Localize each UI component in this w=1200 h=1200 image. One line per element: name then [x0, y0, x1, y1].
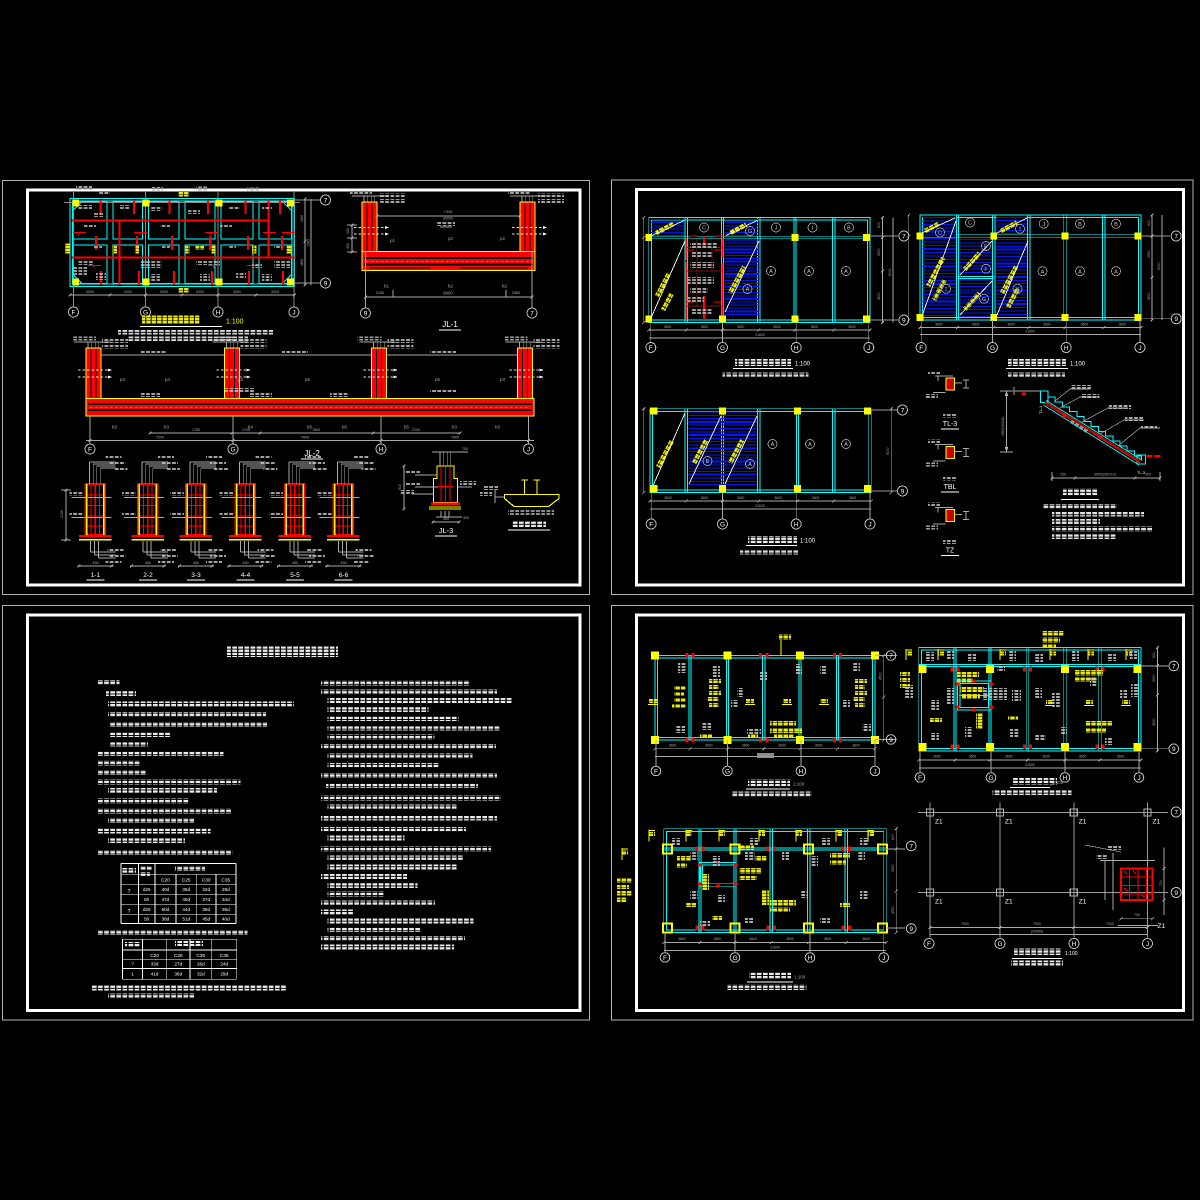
svg-text:B: B: [1114, 222, 1118, 228]
svg-text:TL-3: TL-3: [943, 421, 958, 428]
svg-text:44d: 44d: [182, 907, 190, 912]
svg-text:H: H: [216, 309, 221, 316]
svg-text:910: 910: [398, 484, 402, 490]
svg-text:21600: 21600: [1025, 330, 1035, 334]
svg-text:1:100: 1:100: [793, 782, 805, 787]
svg-text:C30: C30: [202, 878, 211, 884]
svg-text:4500: 4500: [1152, 718, 1156, 726]
svg-text:3600: 3600: [742, 744, 750, 748]
svg-text:600: 600: [891, 834, 895, 840]
svg-text:C: C: [702, 226, 706, 232]
svg-text:4500: 4500: [879, 672, 883, 680]
svg-text:Z1: Z1: [1079, 819, 1087, 826]
svg-text:7: 7: [530, 310, 534, 317]
svg-text:27d: 27d: [174, 962, 182, 967]
svg-text:600: 600: [1147, 220, 1151, 226]
svg-text:3600: 3600: [812, 496, 820, 500]
svg-text:7348: 7348: [444, 209, 454, 214]
svg-text:3600: 3600: [714, 937, 722, 941]
svg-text:37d: 37d: [202, 897, 210, 902]
svg-text:40d: 40d: [222, 917, 230, 922]
svg-text:Z1: Z1: [1005, 819, 1013, 826]
svg-text:3600: 3600: [1043, 323, 1051, 327]
svg-text:d25: d25: [143, 887, 151, 892]
svg-text:A: A: [808, 442, 812, 448]
svg-text:2200: 2200: [412, 428, 420, 432]
svg-text:1:100: 1:100: [1070, 362, 1086, 368]
svg-text:600: 600: [877, 222, 881, 228]
svg-text:9: 9: [909, 926, 913, 933]
svg-text:b3: b3: [452, 425, 458, 430]
svg-text:7800: 7800: [451, 436, 459, 440]
svg-text:41d: 41d: [151, 972, 159, 977]
svg-text:24d: 24d: [220, 962, 228, 967]
svg-text:750: 750: [462, 447, 468, 451]
svg-text:3600: 3600: [1081, 323, 1089, 327]
svg-text:1:100: 1:100: [226, 319, 244, 326]
svg-text:7: 7: [889, 653, 893, 660]
svg-text:9: 9: [364, 310, 368, 317]
svg-text:32d: 32d: [197, 972, 205, 977]
svg-text:450: 450: [340, 561, 346, 565]
svg-text:1650(150x11): 1650(150x11): [1001, 417, 1005, 436]
svg-text:3900: 3900: [891, 864, 895, 872]
svg-text:3600: 3600: [773, 325, 781, 329]
svg-text:TZ: TZ: [946, 548, 955, 555]
svg-text:38d: 38d: [162, 917, 170, 922]
svg-text:b3: b3: [164, 425, 170, 430]
svg-text:p5: p5: [435, 377, 441, 382]
svg-text:b3: b3: [112, 425, 118, 430]
svg-text:G: G: [230, 446, 235, 453]
svg-text:9: 9: [901, 488, 905, 495]
svg-text:d25: d25: [143, 907, 151, 912]
svg-text:J: J: [1042, 222, 1045, 228]
svg-text:8400: 8400: [443, 291, 453, 296]
svg-text:G: G: [990, 345, 995, 352]
svg-text:9: 9: [1174, 890, 1178, 897]
svg-text:3900: 3900: [1147, 250, 1151, 258]
svg-text:3-3: 3-3: [191, 572, 201, 579]
svg-text:35d: 35d: [182, 887, 190, 892]
svg-text:9: 9: [1174, 316, 1178, 323]
svg-text:(20500): (20500): [1031, 930, 1043, 934]
svg-text:450: 450: [193, 561, 199, 565]
svg-text:G: G: [988, 775, 993, 782]
svg-text:C: C: [938, 231, 942, 237]
svg-text:34d: 34d: [222, 897, 230, 902]
svg-text:G: G: [720, 345, 725, 352]
svg-text:p3: p3: [500, 377, 506, 382]
svg-text:J: J: [882, 955, 885, 962]
svg-text:A: A: [1041, 269, 1045, 275]
svg-text:3600: 3600: [933, 755, 941, 759]
svg-text:3600: 3600: [815, 744, 823, 748]
svg-text:H: H: [1072, 941, 1077, 948]
svg-text:3600: 3600: [749, 937, 757, 941]
svg-text:p4: p4: [165, 377, 171, 382]
svg-text:F: F: [72, 309, 76, 316]
svg-text:5-5: 5-5: [290, 572, 300, 579]
svg-text:1:100: 1:100: [1052, 780, 1064, 785]
svg-text:400: 400: [346, 228, 350, 234]
svg-text:A: A: [807, 269, 811, 275]
svg-text:C20: C20: [161, 878, 170, 884]
svg-text:H: H: [794, 521, 799, 528]
svg-text:9: 9: [324, 280, 328, 287]
svg-text:F: F: [918, 775, 922, 782]
svg-text:3600: 3600: [737, 496, 745, 500]
svg-text:40d: 40d: [162, 887, 170, 892]
svg-text:J: J: [1138, 345, 1141, 352]
svg-text:29d: 29d: [222, 887, 230, 892]
svg-text:C25: C25: [174, 953, 183, 959]
svg-text:G: G: [732, 955, 737, 962]
svg-text:C35: C35: [221, 878, 230, 884]
svg-text:3300: 3300: [271, 290, 279, 294]
svg-text:300: 300: [1145, 473, 1151, 477]
svg-text:F: F: [654, 768, 658, 775]
svg-text:45d: 45d: [202, 917, 210, 922]
svg-text:A: A: [769, 269, 773, 275]
svg-text:3300: 3300: [86, 290, 94, 294]
svg-text:3600: 3600: [664, 325, 672, 329]
svg-text:33d: 33d: [151, 962, 159, 967]
svg-text:450: 450: [92, 561, 98, 565]
svg-text:3900: 3900: [877, 248, 881, 256]
svg-text:J: J: [1146, 941, 1149, 948]
svg-text:7: 7: [1172, 663, 1176, 670]
svg-text:7800: 7800: [312, 428, 320, 432]
svg-text:3600: 3600: [778, 744, 786, 748]
svg-text:3600: 3600: [737, 325, 745, 329]
svg-text:9000: 9000: [888, 268, 892, 276]
svg-text:3600: 3600: [678, 937, 686, 941]
svg-text:36d: 36d: [174, 972, 182, 977]
svg-text:450: 450: [145, 561, 151, 565]
svg-text:3600: 3600: [701, 325, 709, 329]
svg-text:?: ?: [128, 889, 131, 895]
svg-text:1780: 1780: [192, 428, 200, 432]
svg-text:32d: 32d: [202, 887, 210, 892]
svg-text:4500: 4500: [891, 906, 895, 914]
svg-text:J: J: [1137, 775, 1140, 782]
svg-text:J: J: [775, 226, 778, 232]
svg-text:A: A: [844, 442, 848, 448]
svg-text:1:100: 1:100: [794, 975, 806, 980]
svg-text:3600: 3600: [705, 744, 713, 748]
svg-text:3600: 3600: [669, 744, 677, 748]
svg-text:7: 7: [902, 233, 906, 240]
svg-text:H: H: [379, 446, 384, 453]
svg-text:3600: 3600: [969, 755, 977, 759]
svg-text:p3: p3: [238, 377, 244, 382]
svg-text:3600: 3600: [701, 496, 709, 500]
svg-text:4200: 4200: [300, 215, 304, 222]
svg-text:G: G: [720, 521, 725, 528]
svg-text:50: 50: [144, 917, 150, 922]
svg-text:3600: 3600: [972, 323, 980, 327]
svg-text:3600: 3600: [1042, 755, 1050, 759]
svg-text:J: J: [527, 446, 530, 453]
svg-text:4500: 4500: [877, 292, 881, 300]
svg-text:7200: 7200: [156, 436, 164, 440]
svg-text:1:100: 1:100: [795, 362, 811, 368]
svg-text:C20: C20: [150, 953, 159, 959]
svg-text:47d: 47d: [162, 897, 170, 902]
svg-text:3600: 3600: [1079, 755, 1087, 759]
svg-text:TBL: TBL: [944, 484, 957, 491]
svg-text:38d: 38d: [202, 907, 210, 912]
svg-text:3600: 3600: [862, 937, 870, 941]
svg-text:G: G: [982, 297, 986, 303]
svg-text:Z1: Z1: [1158, 923, 1166, 930]
svg-text:H: H: [1016, 287, 1020, 293]
svg-text:51d: 51d: [182, 917, 190, 922]
svg-text:50: 50: [144, 897, 150, 902]
svg-text:7: 7: [909, 843, 913, 850]
svg-text:3600: 3600: [824, 937, 832, 941]
svg-text:A: A: [748, 462, 752, 468]
svg-text:3600: 3600: [1117, 755, 1125, 759]
svg-text:3600: 3600: [811, 325, 819, 329]
svg-text:J: J: [873, 768, 876, 775]
svg-text:1-1: 1-1: [91, 572, 101, 579]
svg-text:3600: 3600: [664, 496, 672, 500]
svg-text:7000: 7000: [1106, 922, 1114, 926]
svg-text:B: B: [847, 226, 851, 232]
svg-text:b1: b1: [384, 284, 390, 289]
svg-text:35d: 35d: [222, 907, 230, 912]
svg-text:3600: 3600: [786, 937, 794, 941]
svg-text:H: H: [799, 768, 804, 775]
svg-text:3600: 3600: [1119, 323, 1127, 327]
svg-text:G: G: [997, 941, 1002, 948]
svg-text:J: J: [292, 309, 295, 316]
svg-text:450: 450: [346, 243, 350, 249]
svg-text:9: 9: [889, 737, 893, 744]
svg-text:3600: 3600: [848, 325, 856, 329]
svg-text:26d: 26d: [197, 962, 205, 967]
svg-text:6-6: 6-6: [339, 572, 349, 579]
svg-text:3300: 3300: [233, 290, 241, 294]
svg-text:21600: 21600: [1025, 763, 1035, 767]
svg-text:7: 7: [901, 407, 905, 414]
svg-text:Z1: Z1: [1079, 899, 1087, 906]
svg-text:B: B: [706, 459, 710, 465]
svg-text:3300: 3300: [160, 290, 168, 294]
svg-text:1745: 1745: [242, 428, 250, 432]
svg-text:3000(250x12): 3000(250x12): [1094, 473, 1116, 477]
svg-text:9000: 9000: [886, 447, 890, 455]
svg-text:600: 600: [1152, 652, 1156, 658]
svg-text:b5: b5: [404, 425, 410, 430]
svg-text:TL-3: TL-3: [1137, 471, 1145, 475]
svg-text:450: 450: [242, 561, 248, 565]
svg-text:C35: C35: [220, 953, 229, 959]
svg-text:C25: C25: [182, 878, 191, 884]
svg-text:?: ?: [128, 909, 131, 915]
svg-text:A: A: [746, 287, 750, 293]
svg-text:p5: p5: [305, 377, 311, 382]
svg-text:9: 9: [902, 317, 906, 324]
svg-text:3300: 3300: [124, 290, 132, 294]
svg-text:b2: b2: [502, 284, 508, 289]
svg-text:p2: p2: [500, 236, 506, 241]
svg-text:29d: 29d: [220, 972, 228, 977]
svg-text:4500: 4500: [1147, 292, 1151, 300]
svg-text:p3: p3: [120, 377, 126, 382]
svg-text:450: 450: [443, 517, 449, 521]
svg-text:Z1: Z1: [1153, 819, 1161, 826]
svg-text:H: H: [808, 955, 813, 962]
svg-text:J: J: [867, 345, 870, 352]
svg-text:700: 700: [1134, 913, 1140, 917]
svg-text:F: F: [88, 446, 92, 453]
svg-text:3900: 3900: [1152, 674, 1156, 682]
svg-text:A: A: [771, 442, 775, 448]
svg-text:7: 7: [1174, 233, 1178, 240]
svg-text:7800: 7800: [301, 436, 309, 440]
svg-text:G: G: [748, 229, 752, 235]
svg-text:9000: 9000: [1157, 262, 1161, 270]
svg-text:b2: b2: [448, 284, 454, 289]
svg-text:F: F: [649, 345, 653, 352]
svg-text:J: J: [868, 521, 871, 528]
svg-text:H: H: [794, 345, 799, 352]
svg-text:2-2: 2-2: [143, 572, 153, 579]
svg-text:4800: 4800: [300, 259, 304, 266]
svg-text:3600: 3600: [935, 323, 943, 327]
svg-text:9: 9: [1172, 746, 1176, 753]
svg-text:4-4: 4-4: [241, 572, 251, 579]
svg-text:21600: 21600: [755, 504, 765, 508]
svg-text:2100: 2100: [60, 510, 64, 518]
svg-text:H: H: [1064, 345, 1069, 352]
svg-text:3300: 3300: [196, 290, 204, 294]
svg-text:2380: 2380: [512, 291, 520, 295]
svg-text:b5: b5: [342, 425, 348, 430]
svg-text:1:100: 1:100: [800, 539, 816, 545]
svg-text:9000: 9000: [307, 239, 311, 246]
svg-text:450: 450: [292, 561, 298, 565]
svg-text:TL-1: TL-1: [1038, 405, 1043, 414]
svg-text:F: F: [927, 941, 931, 948]
svg-text:3600: 3600: [852, 744, 860, 748]
svg-text:50d: 50d: [162, 907, 170, 912]
svg-text:?: ?: [131, 962, 134, 967]
svg-text:21600: 21600: [770, 946, 780, 950]
svg-text:3600: 3600: [1007, 323, 1015, 327]
svg-text:F: F: [663, 955, 667, 962]
svg-text:G: G: [143, 309, 148, 316]
svg-text:A: A: [1078, 269, 1082, 275]
svg-text:JL-3: JL-3: [439, 526, 454, 535]
svg-text:F: F: [649, 521, 653, 528]
svg-text:Z1: Z1: [935, 819, 943, 826]
svg-text:250: 250: [1060, 473, 1066, 477]
svg-text:Z1: Z1: [1005, 899, 1013, 906]
svg-text:21600: 21600: [755, 333, 765, 337]
svg-text:G: G: [725, 768, 730, 775]
svg-text:7500: 7500: [961, 922, 969, 926]
svg-text:A: A: [844, 269, 848, 275]
svg-text:F: F: [919, 345, 923, 352]
svg-text:(6550): (6550): [443, 217, 453, 221]
svg-text:p1: p1: [390, 238, 396, 243]
svg-text:3600: 3600: [774, 496, 782, 500]
svg-text:700: 700: [1159, 880, 1163, 886]
svg-text:450: 450: [463, 516, 469, 520]
svg-text:7000: 7000: [1033, 922, 1041, 926]
svg-text:A: A: [1114, 269, 1118, 275]
svg-text:p2: p2: [448, 236, 454, 241]
svg-text:B: B: [1078, 222, 1082, 228]
svg-text:C30: C30: [196, 953, 205, 959]
svg-text:7: 7: [324, 197, 328, 204]
svg-text:1: 1: [131, 972, 134, 977]
svg-text:3600: 3600: [1005, 755, 1013, 759]
svg-text:C: C: [968, 221, 972, 227]
svg-text:Z1: Z1: [935, 899, 943, 906]
svg-text:3600: 3600: [849, 496, 857, 500]
svg-text:7: 7: [1174, 809, 1178, 816]
svg-text:1:100: 1:100: [1065, 951, 1078, 957]
svg-text:b3: b3: [495, 425, 501, 430]
svg-text:H: H: [1063, 775, 1068, 782]
svg-text:2180: 2180: [376, 291, 384, 295]
svg-text:40d: 40d: [182, 897, 190, 902]
svg-text:E: E: [984, 244, 988, 250]
svg-text:JL-1: JL-1: [442, 320, 458, 329]
